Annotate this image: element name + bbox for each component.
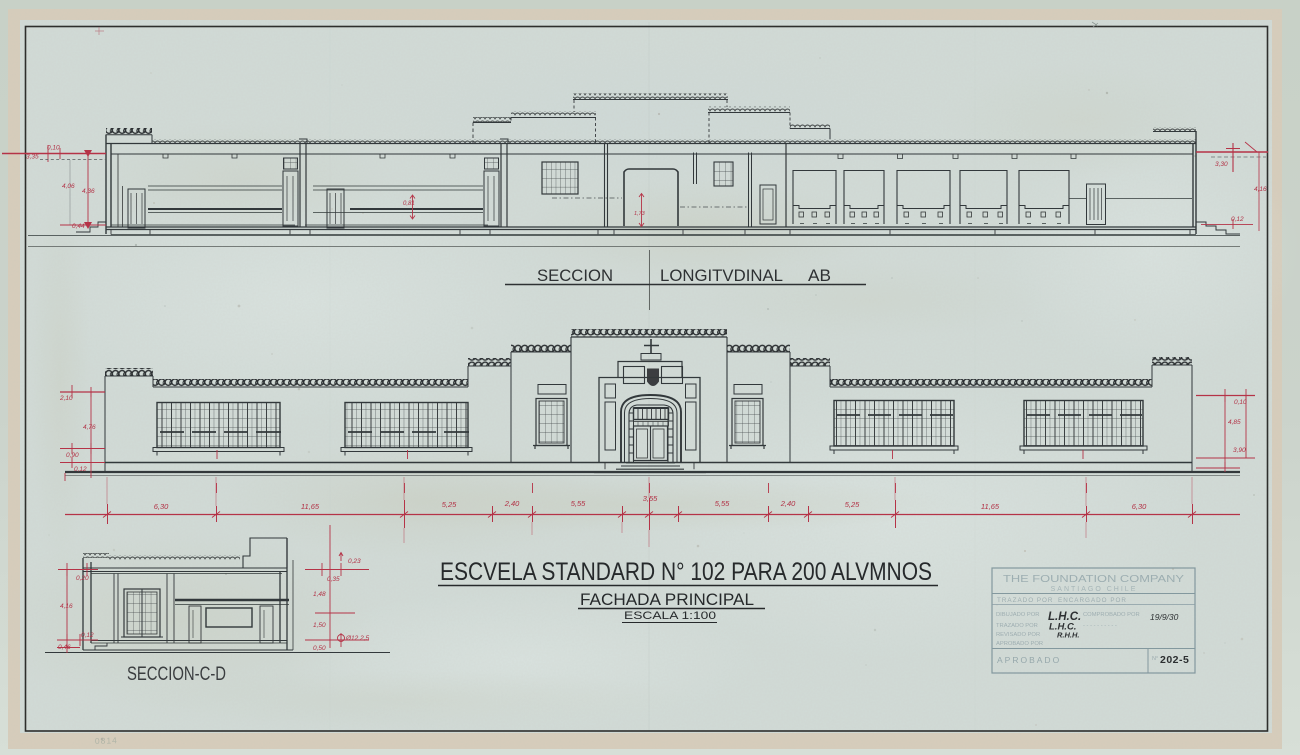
svg-text:0,10: 0,10 xyxy=(1234,399,1247,406)
svg-text:R.H.H.: R.H.H. xyxy=(1057,631,1080,640)
svg-text:Ø12 2,5: Ø12 2,5 xyxy=(345,635,370,642)
svg-text:0,50: 0,50 xyxy=(313,645,326,652)
svg-text:APROBADO POR: APROBADO POR xyxy=(996,641,1043,647)
svg-text:2,40: 2,40 xyxy=(780,499,796,508)
svg-text:FACHADA PRINCIPAL: FACHADA PRINCIPAL xyxy=(580,590,754,609)
svg-text:APROBADO: APROBADO xyxy=(997,655,1061,665)
svg-text:4,76: 4,76 xyxy=(83,424,96,431)
svg-text:5,55: 5,55 xyxy=(715,499,730,508)
svg-text:0,10: 0,10 xyxy=(47,145,60,152)
svg-text:5,25: 5,25 xyxy=(442,500,457,509)
svg-text:3,90: 3,90 xyxy=(1233,447,1246,454)
svg-text:4,06: 4,06 xyxy=(62,183,75,190)
svg-text:SECCION: SECCION xyxy=(537,267,613,285)
svg-text:4,85: 4,85 xyxy=(1228,419,1241,426)
svg-text:TRAZADO POR: TRAZADO POR xyxy=(997,597,1053,604)
svg-text:1,50: 1,50 xyxy=(313,622,326,629)
svg-text:0,12: 0,12 xyxy=(1231,216,1244,223)
svg-text:3,35: 3,35 xyxy=(26,154,39,161)
svg-text:3,55: 3,55 xyxy=(643,494,658,503)
svg-text:TRAZADO POR: TRAZADO POR xyxy=(996,623,1038,629)
svg-text:DIBUJADO POR: DIBUJADO POR xyxy=(996,612,1039,618)
svg-text:0,81: 0,81 xyxy=(403,201,415,207)
svg-text:4,16: 4,16 xyxy=(60,603,73,610)
svg-text:5,55: 5,55 xyxy=(571,499,586,508)
svg-text:- - - - - - - - - -: - - - - - - - - - - xyxy=(1083,623,1117,629)
svg-text:ESCALA 1:100: ESCALA 1:100 xyxy=(624,610,716,622)
svg-text:N°: N° xyxy=(1152,656,1158,662)
svg-text:0,23: 0,23 xyxy=(348,558,361,565)
svg-text:AB: AB xyxy=(808,267,831,285)
svg-text:6,30: 6,30 xyxy=(1132,502,1147,511)
svg-text:19/9/30: 19/9/30 xyxy=(1150,612,1179,622)
svg-text:0,44: 0,44 xyxy=(72,223,85,230)
svg-text:3,30: 3,30 xyxy=(1215,161,1228,168)
svg-text:6,30: 6,30 xyxy=(154,502,169,511)
svg-text:5,25: 5,25 xyxy=(845,500,860,509)
svg-text:4,36: 4,36 xyxy=(82,188,95,195)
svg-text:1,73: 1,73 xyxy=(634,211,646,217)
svg-text:SANTIAGO CHILE: SANTIAGO CHILE xyxy=(1051,586,1138,593)
svg-text:COMPROBADO POR: COMPROBADO POR xyxy=(1083,612,1140,618)
svg-text:THE FOUNDATION COMPANY: THE FOUNDATION COMPANY xyxy=(1003,574,1184,585)
svg-text:SECCION-C-D: SECCION-C-D xyxy=(127,664,226,685)
svg-text:0,90: 0,90 xyxy=(66,452,79,459)
svg-text:ESCVELA STANDARD N° 102 PARA 2: ESCVELA STANDARD N° 102 PARA 200 ALVMNOS xyxy=(440,558,932,586)
svg-text:11,65: 11,65 xyxy=(981,502,1000,511)
svg-text:0,35: 0,35 xyxy=(327,576,340,583)
svg-text:202-5: 202-5 xyxy=(1160,654,1189,666)
svg-text:0814: 0814 xyxy=(95,735,118,746)
svg-text:0,12: 0,12 xyxy=(81,632,94,639)
svg-text:ENCARGADO POR: ENCARGADO POR xyxy=(1058,597,1127,604)
svg-text:2,10: 2,10 xyxy=(59,395,73,402)
svg-text:11,65: 11,65 xyxy=(301,502,320,511)
svg-text:0,46: 0,46 xyxy=(58,644,71,651)
svg-text:0,12: 0,12 xyxy=(74,466,87,473)
svg-text:1,48: 1,48 xyxy=(313,591,326,598)
svg-text:LONGITVDINAL: LONGITVDINAL xyxy=(660,267,783,285)
svg-text:0,20: 0,20 xyxy=(76,575,89,582)
svg-text:REVISADO POR: REVISADO POR xyxy=(996,632,1040,638)
svg-text:4,16: 4,16 xyxy=(1254,186,1267,193)
svg-text:2,40: 2,40 xyxy=(504,499,520,508)
